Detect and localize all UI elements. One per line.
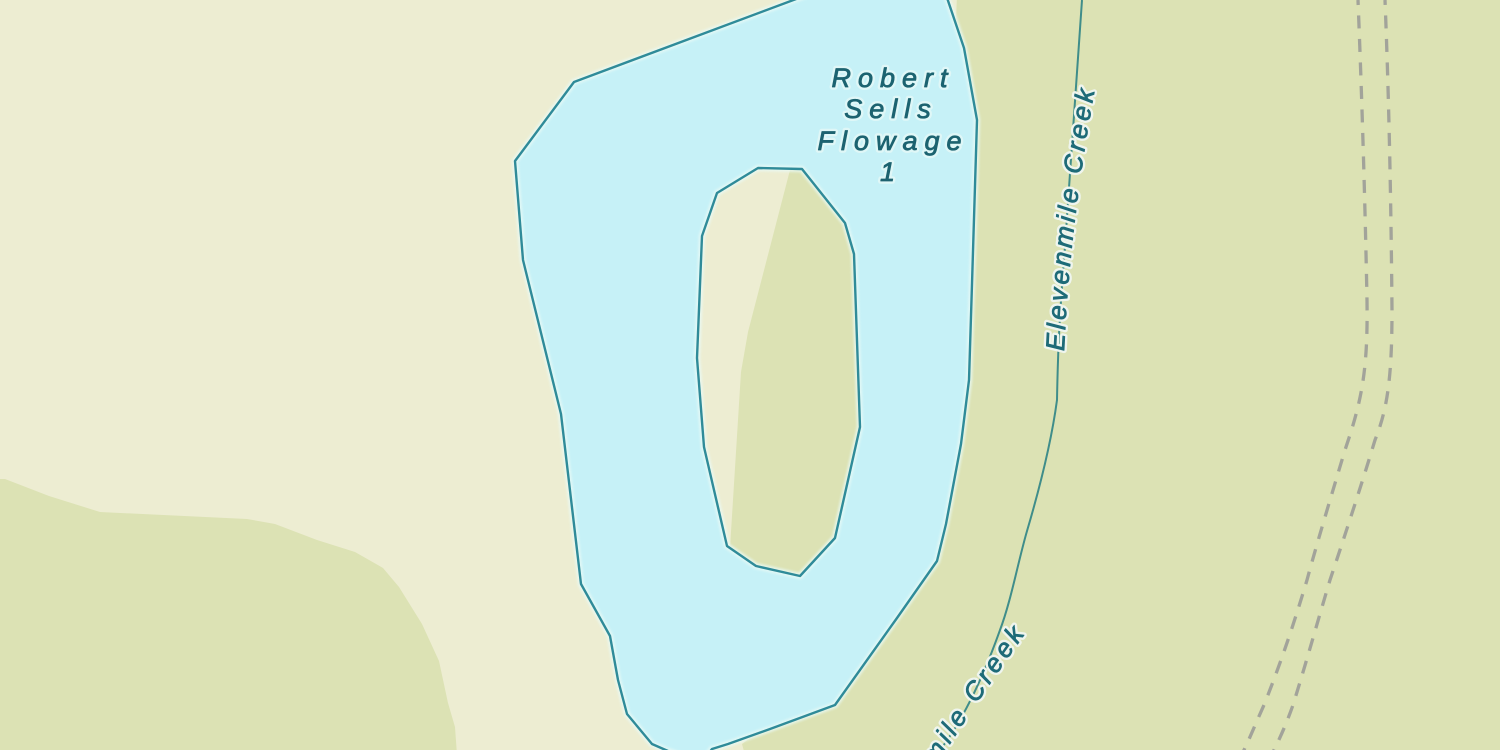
svg-text:1: 1: [880, 157, 902, 187]
svg-text:Robert: Robert: [831, 63, 954, 93]
svg-text:Flowage: Flowage: [817, 126, 968, 156]
svg-text:Sells: Sells: [844, 94, 938, 124]
